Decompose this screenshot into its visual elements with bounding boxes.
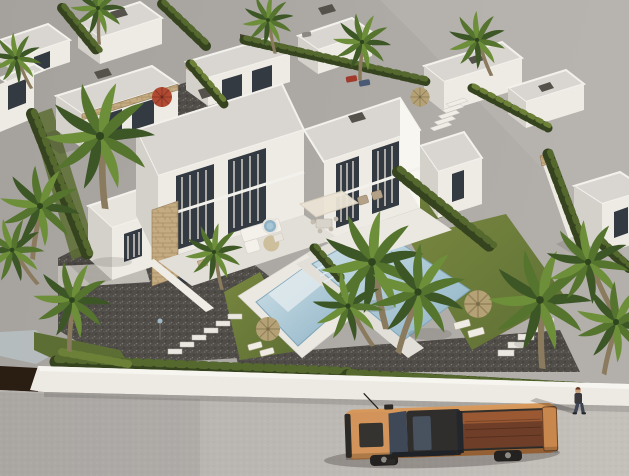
red-parasol (152, 87, 172, 107)
door (614, 207, 628, 238)
annex-door (452, 170, 464, 202)
tailgate (542, 407, 558, 451)
mirror (384, 404, 393, 409)
torso (575, 393, 583, 404)
shoe (573, 412, 578, 414)
sunroof (413, 416, 432, 451)
dining-table (316, 219, 332, 228)
annex (420, 132, 482, 218)
mirror (386, 459, 395, 464)
render-canvas (0, 0, 629, 476)
windshield (388, 411, 408, 458)
architectural-render (0, 0, 629, 476)
hood-scoop (359, 423, 384, 448)
straw-parasol (464, 290, 492, 318)
straw-parasol (256, 317, 280, 341)
shoe (582, 412, 587, 414)
straw-parasol-top (410, 87, 429, 106)
jacuzzi (263, 219, 277, 233)
